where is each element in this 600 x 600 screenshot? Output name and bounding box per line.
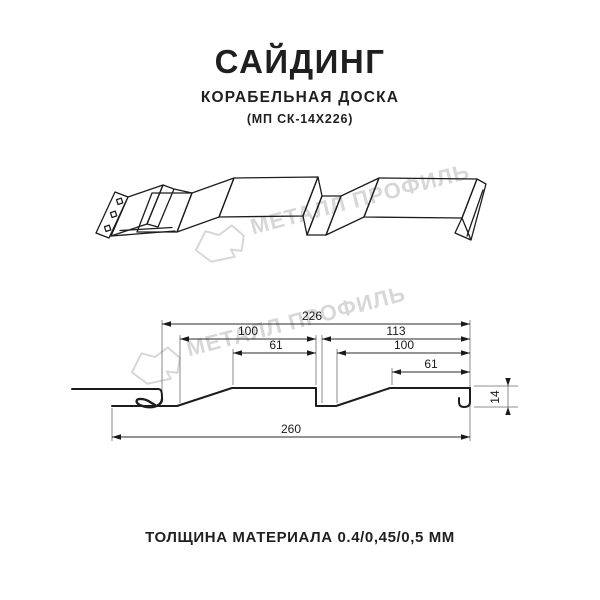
dimension-label: 61 [424,357,438,371]
profile-3d-drawing [85,158,515,278]
dimension-label: 260 [281,422,301,436]
profile-section-drawing: 226 100 113 61 100 61 260 [0,295,600,470]
dimension-100-right: 100 [337,338,470,356]
dimension-61-left: 61 [233,338,316,356]
dimension-label: 226 [302,309,322,323]
dimension-61-right: 61 [392,357,470,375]
header: САЙДИНГ КОРАБЕЛЬНАЯ ДОСКА (МП СК-14Х226) [0,44,600,126]
dimension-100-left: 100 [180,324,316,342]
dimension-14: 14 [488,378,511,415]
dimension-label: 100 [238,324,258,338]
dimension-226: 226 [162,309,470,327]
product-model-code: (МП СК-14Х226) [0,112,600,126]
dimension-label: 61 [269,338,283,352]
dimension-label: 14 [488,390,502,404]
page-title: САЙДИНГ [0,44,600,80]
dimension-label: 100 [394,338,414,352]
product-subtitle: КОРАБЕЛЬНАЯ ДОСКА [0,89,600,107]
profile-outline [72,388,470,407]
thickness-note: ТОЛЩИНА МАТЕРИАЛА 0.4/0,45/0,5 ММ [0,529,600,546]
extension-lines [112,320,518,441]
dimension-260: 260 [112,422,470,440]
dimension-label: 113 [386,324,405,338]
